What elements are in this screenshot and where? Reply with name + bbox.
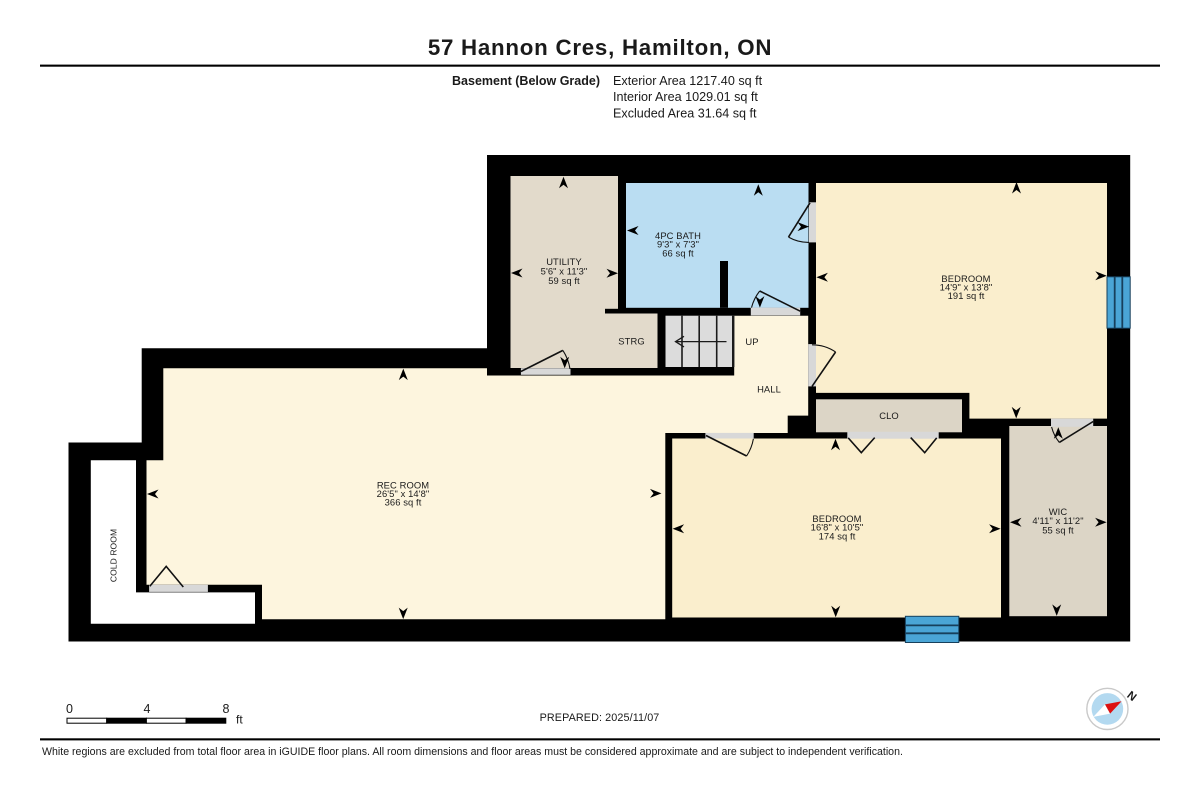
- svg-text:COLD ROOM: COLD ROOM: [109, 529, 119, 582]
- svg-text:Excluded Area 31.64 sq ft: Excluded Area 31.64 sq ft: [613, 107, 757, 121]
- svg-text:4: 4: [144, 702, 151, 716]
- svg-text:ft: ft: [236, 713, 243, 727]
- svg-text:White regions are excluded fro: White regions are excluded from total fl…: [42, 746, 903, 758]
- svg-text:57 Hannon Cres, Hamilton, ON: 57 Hannon Cres, Hamilton, ON: [428, 35, 772, 60]
- svg-text:Interior Area 1029.01 sq ft: Interior Area 1029.01 sq ft: [613, 90, 758, 104]
- svg-text:UP: UP: [745, 336, 758, 347]
- svg-text:PREPARED: 2025/11/07: PREPARED: 2025/11/07: [540, 712, 660, 724]
- svg-text:Exterior Area 1217.40 sq ft: Exterior Area 1217.40 sq ft: [613, 74, 763, 88]
- svg-text:0: 0: [66, 702, 73, 716]
- svg-text:STRG: STRG: [618, 336, 644, 347]
- svg-text:HALL: HALL: [757, 384, 781, 395]
- svg-text:Basement (Below Grade): Basement (Below Grade): [452, 74, 600, 88]
- svg-text:CLO: CLO: [879, 410, 899, 421]
- svg-text:8: 8: [223, 702, 230, 716]
